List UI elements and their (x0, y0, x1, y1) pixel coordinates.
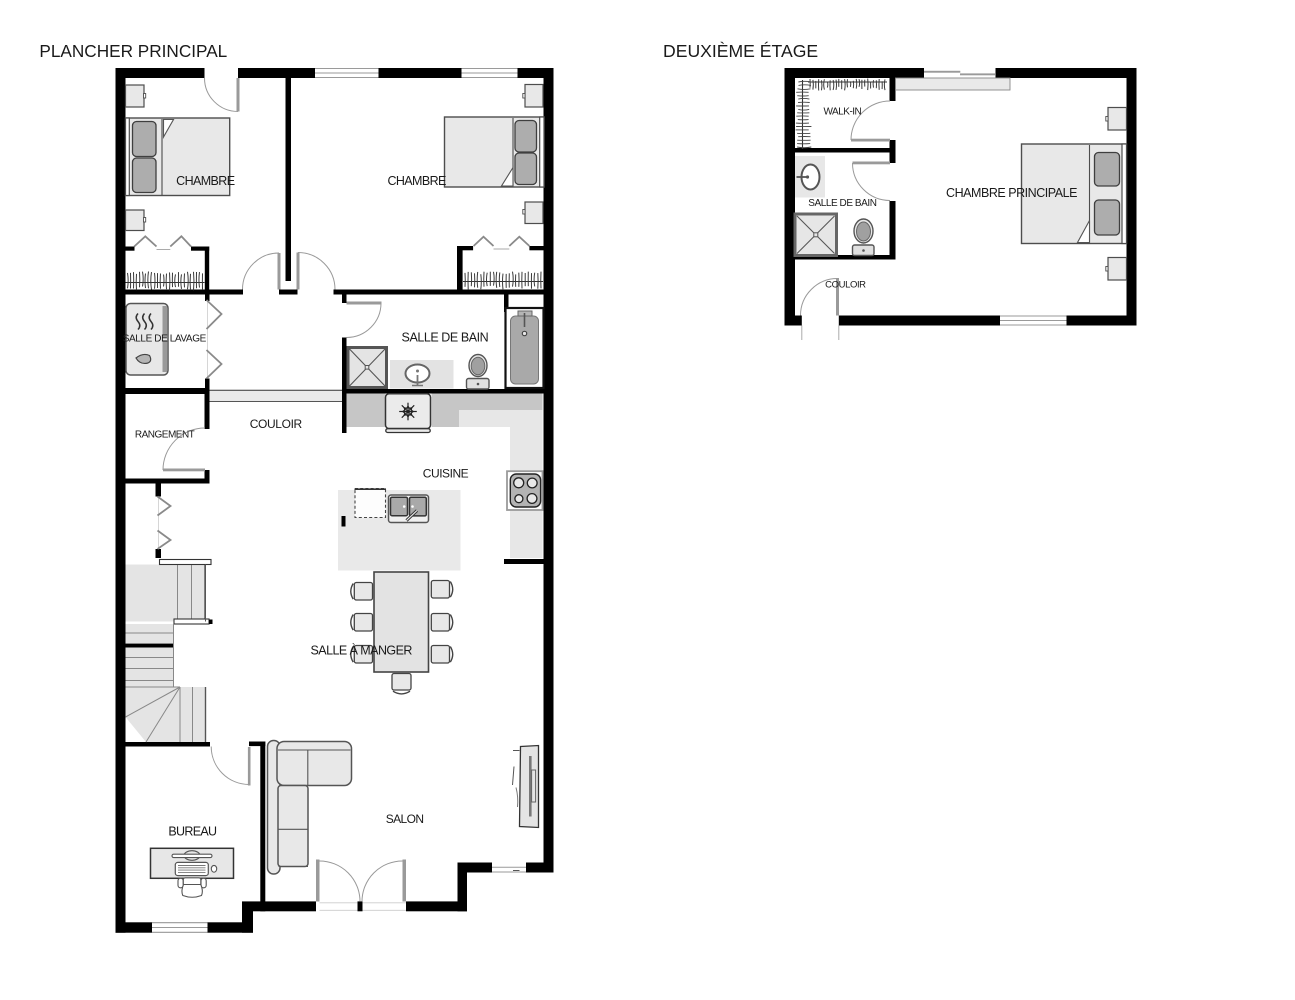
svg-text:COULOIR: COULOIR (250, 417, 303, 431)
svg-text:PLANCHER PRINCIPAL: PLANCHER PRINCIPAL (39, 41, 227, 61)
svg-text:RANGEMENT: RANGEMENT (135, 430, 195, 441)
svg-text:WALK-IN: WALK-IN (823, 107, 861, 118)
svg-text:CUISINE: CUISINE (423, 467, 469, 481)
svg-text:CHAMBRE PRINCIPALE: CHAMBRE PRINCIPALE (946, 186, 1077, 200)
svg-text:CHAMBRE: CHAMBRE (176, 174, 235, 188)
svg-text:SALON: SALON (386, 812, 424, 826)
svg-text:SALLE DE BAIN: SALLE DE BAIN (808, 198, 877, 209)
svg-text:SALLE DE LAVAGE: SALLE DE LAVAGE (123, 334, 207, 345)
svg-text:BUREAU: BUREAU (168, 825, 217, 839)
svg-text:SALLE À MANGER: SALLE À MANGER (311, 643, 413, 658)
svg-text:COULOIR: COULOIR (825, 280, 866, 291)
svg-text:DEUXIÈME ÉTAGE: DEUXIÈME ÉTAGE (663, 41, 818, 61)
svg-text:SALLE DE BAIN: SALLE DE BAIN (402, 331, 489, 345)
svg-text:CHAMBRE: CHAMBRE (387, 174, 446, 188)
